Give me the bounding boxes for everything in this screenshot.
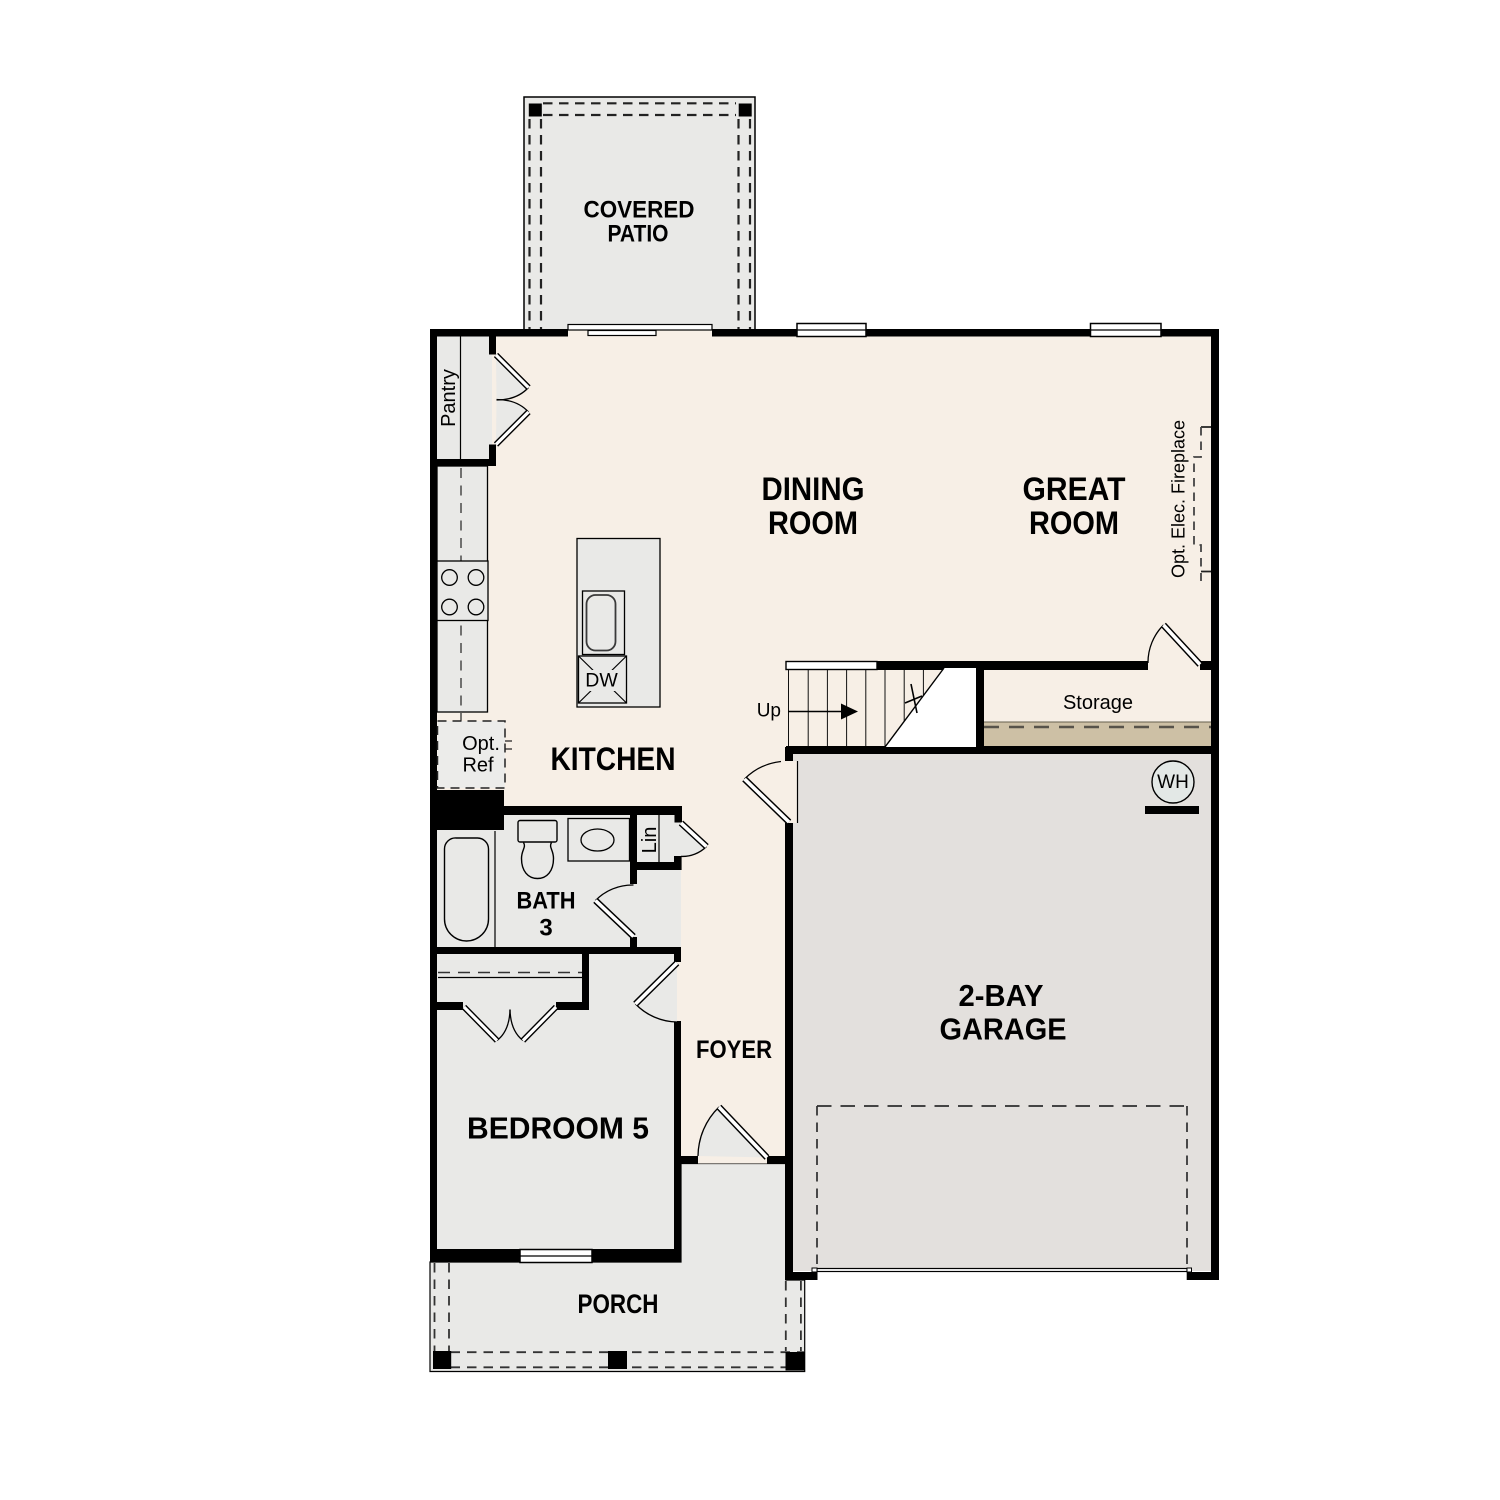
svg-text:KITCHEN: KITCHEN <box>551 741 676 777</box>
svg-text:DW: DW <box>585 670 618 692</box>
svg-text:GARAGE: GARAGE <box>940 1013 1067 1047</box>
svg-text:Opt. Elec. Fireplace: Opt. Elec. Fireplace <box>1169 420 1189 578</box>
svg-text:COVERED: COVERED <box>584 197 695 224</box>
svg-text:GREAT: GREAT <box>1023 471 1126 507</box>
svg-text:PORCH: PORCH <box>578 1289 659 1319</box>
svg-text:2-BAY: 2-BAY <box>959 979 1044 1013</box>
svg-text:BATH: BATH <box>517 888 576 915</box>
svg-text:Ref: Ref <box>462 755 494 777</box>
svg-text:Pantry: Pantry <box>438 369 460 427</box>
svg-text:PATIO: PATIO <box>608 221 669 248</box>
svg-text:BEDROOM 5: BEDROOM 5 <box>467 1111 649 1146</box>
svg-text:Lin: Lin <box>639 827 661 854</box>
svg-text:3: 3 <box>539 915 552 942</box>
svg-text:WH: WH <box>1157 772 1189 793</box>
svg-text:ROOM: ROOM <box>768 505 858 541</box>
svg-text:Up: Up <box>757 701 781 722</box>
svg-text:Storage: Storage <box>1063 692 1133 714</box>
svg-text:DINING: DINING <box>762 471 865 507</box>
svg-text:Opt.: Opt. <box>462 733 500 755</box>
svg-text:FOYER: FOYER <box>696 1036 772 1064</box>
svg-text:ROOM: ROOM <box>1029 505 1119 541</box>
